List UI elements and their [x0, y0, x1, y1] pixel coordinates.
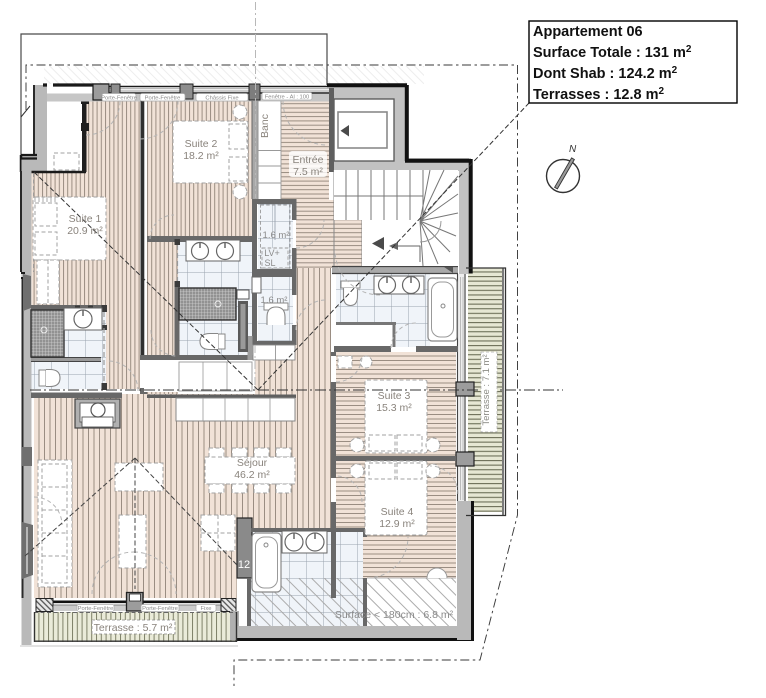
svg-text:Suite 4: Suite 4: [381, 506, 414, 518]
svg-text:1.6 m²: 1.6 m²: [261, 295, 288, 306]
svg-text:Porte-Fenêtre: Porte-Fenêtre: [145, 96, 181, 102]
svg-text:Terrasse : 7.1 m²: Terrasse : 7.1 m²: [481, 354, 492, 425]
svg-text:12: 12: [238, 559, 250, 571]
svg-text:N: N: [569, 144, 577, 155]
svg-text:Dont Shab : 124.2 m2: Dont Shab : 124.2 m2: [533, 65, 678, 82]
svg-text:Porte-Fenêtre: Porte-Fenêtre: [78, 606, 114, 612]
svg-text:Fixe: Fixe: [201, 606, 212, 612]
svg-text:15.3 m²: 15.3 m²: [376, 402, 412, 414]
svg-text:SL: SL: [264, 258, 275, 268]
svg-text:12.9 m²: 12.9 m²: [379, 518, 415, 530]
svg-text:20.9 m²: 20.9 m²: [67, 225, 103, 237]
svg-text:Séjour: Séjour: [237, 457, 268, 469]
svg-text:46.2 m²: 46.2 m²: [234, 469, 270, 481]
svg-text:Châssis Fixe: Châssis Fixe: [205, 96, 238, 102]
svg-text:Suite 3: Suite 3: [378, 390, 411, 402]
svg-text:Surface Totale : 131 m2: Surface Totale : 131 m2: [533, 44, 692, 61]
svg-text:Fenêtre - Al : 100: Fenêtre - Al : 100: [265, 95, 309, 101]
svg-text:Terrasses : 12.8 m2: Terrasses : 12.8 m2: [533, 86, 664, 103]
svg-text:LV+: LV+: [264, 248, 280, 258]
svg-text:Banc: Banc: [259, 114, 271, 138]
svg-text:Terrasse : 5.7 m²: Terrasse : 5.7 m²: [94, 622, 173, 634]
svg-text:Suite 2: Suite 2: [185, 138, 218, 150]
svg-text:Entrée: Entrée: [293, 154, 324, 166]
svg-text:Porte-Fenêtre: Porte-Fenêtre: [142, 606, 178, 612]
svg-text:Surface < 180cm : 6.8 m²: Surface < 180cm : 6.8 m²: [335, 609, 454, 621]
svg-text:7.5 m²: 7.5 m²: [293, 166, 323, 178]
svg-text:Suite 1: Suite 1: [69, 213, 102, 225]
svg-text:18.2 m²: 18.2 m²: [183, 150, 219, 162]
svg-text:Appartement 06: Appartement 06: [533, 24, 643, 40]
svg-text:Porte-Fenêtre: Porte-Fenêtre: [101, 96, 137, 102]
svg-text:1.6 m²: 1.6 m²: [263, 230, 290, 241]
